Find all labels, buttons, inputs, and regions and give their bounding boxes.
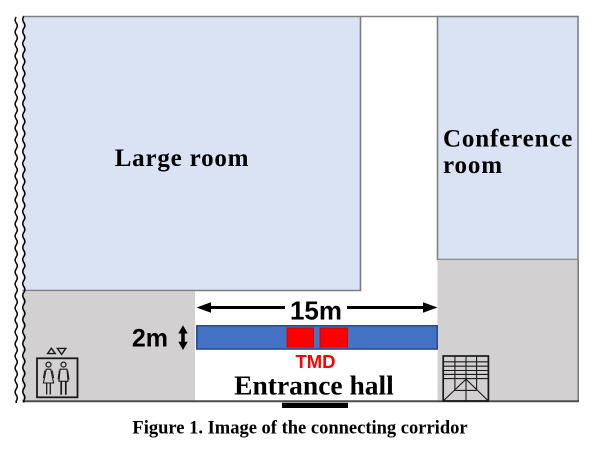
svg-text:Large room: Large room (115, 145, 250, 172)
svg-text:2m: 2m (132, 325, 168, 353)
svg-text:Conference: Conference (443, 126, 573, 153)
svg-text:15m: 15m (290, 296, 342, 326)
svg-text:Figure 1. Image of the connect: Figure 1. Image of the connecting corrid… (132, 419, 467, 439)
svg-text:room: room (443, 152, 503, 179)
svg-text:Entrance hall: Entrance hall (234, 369, 394, 400)
